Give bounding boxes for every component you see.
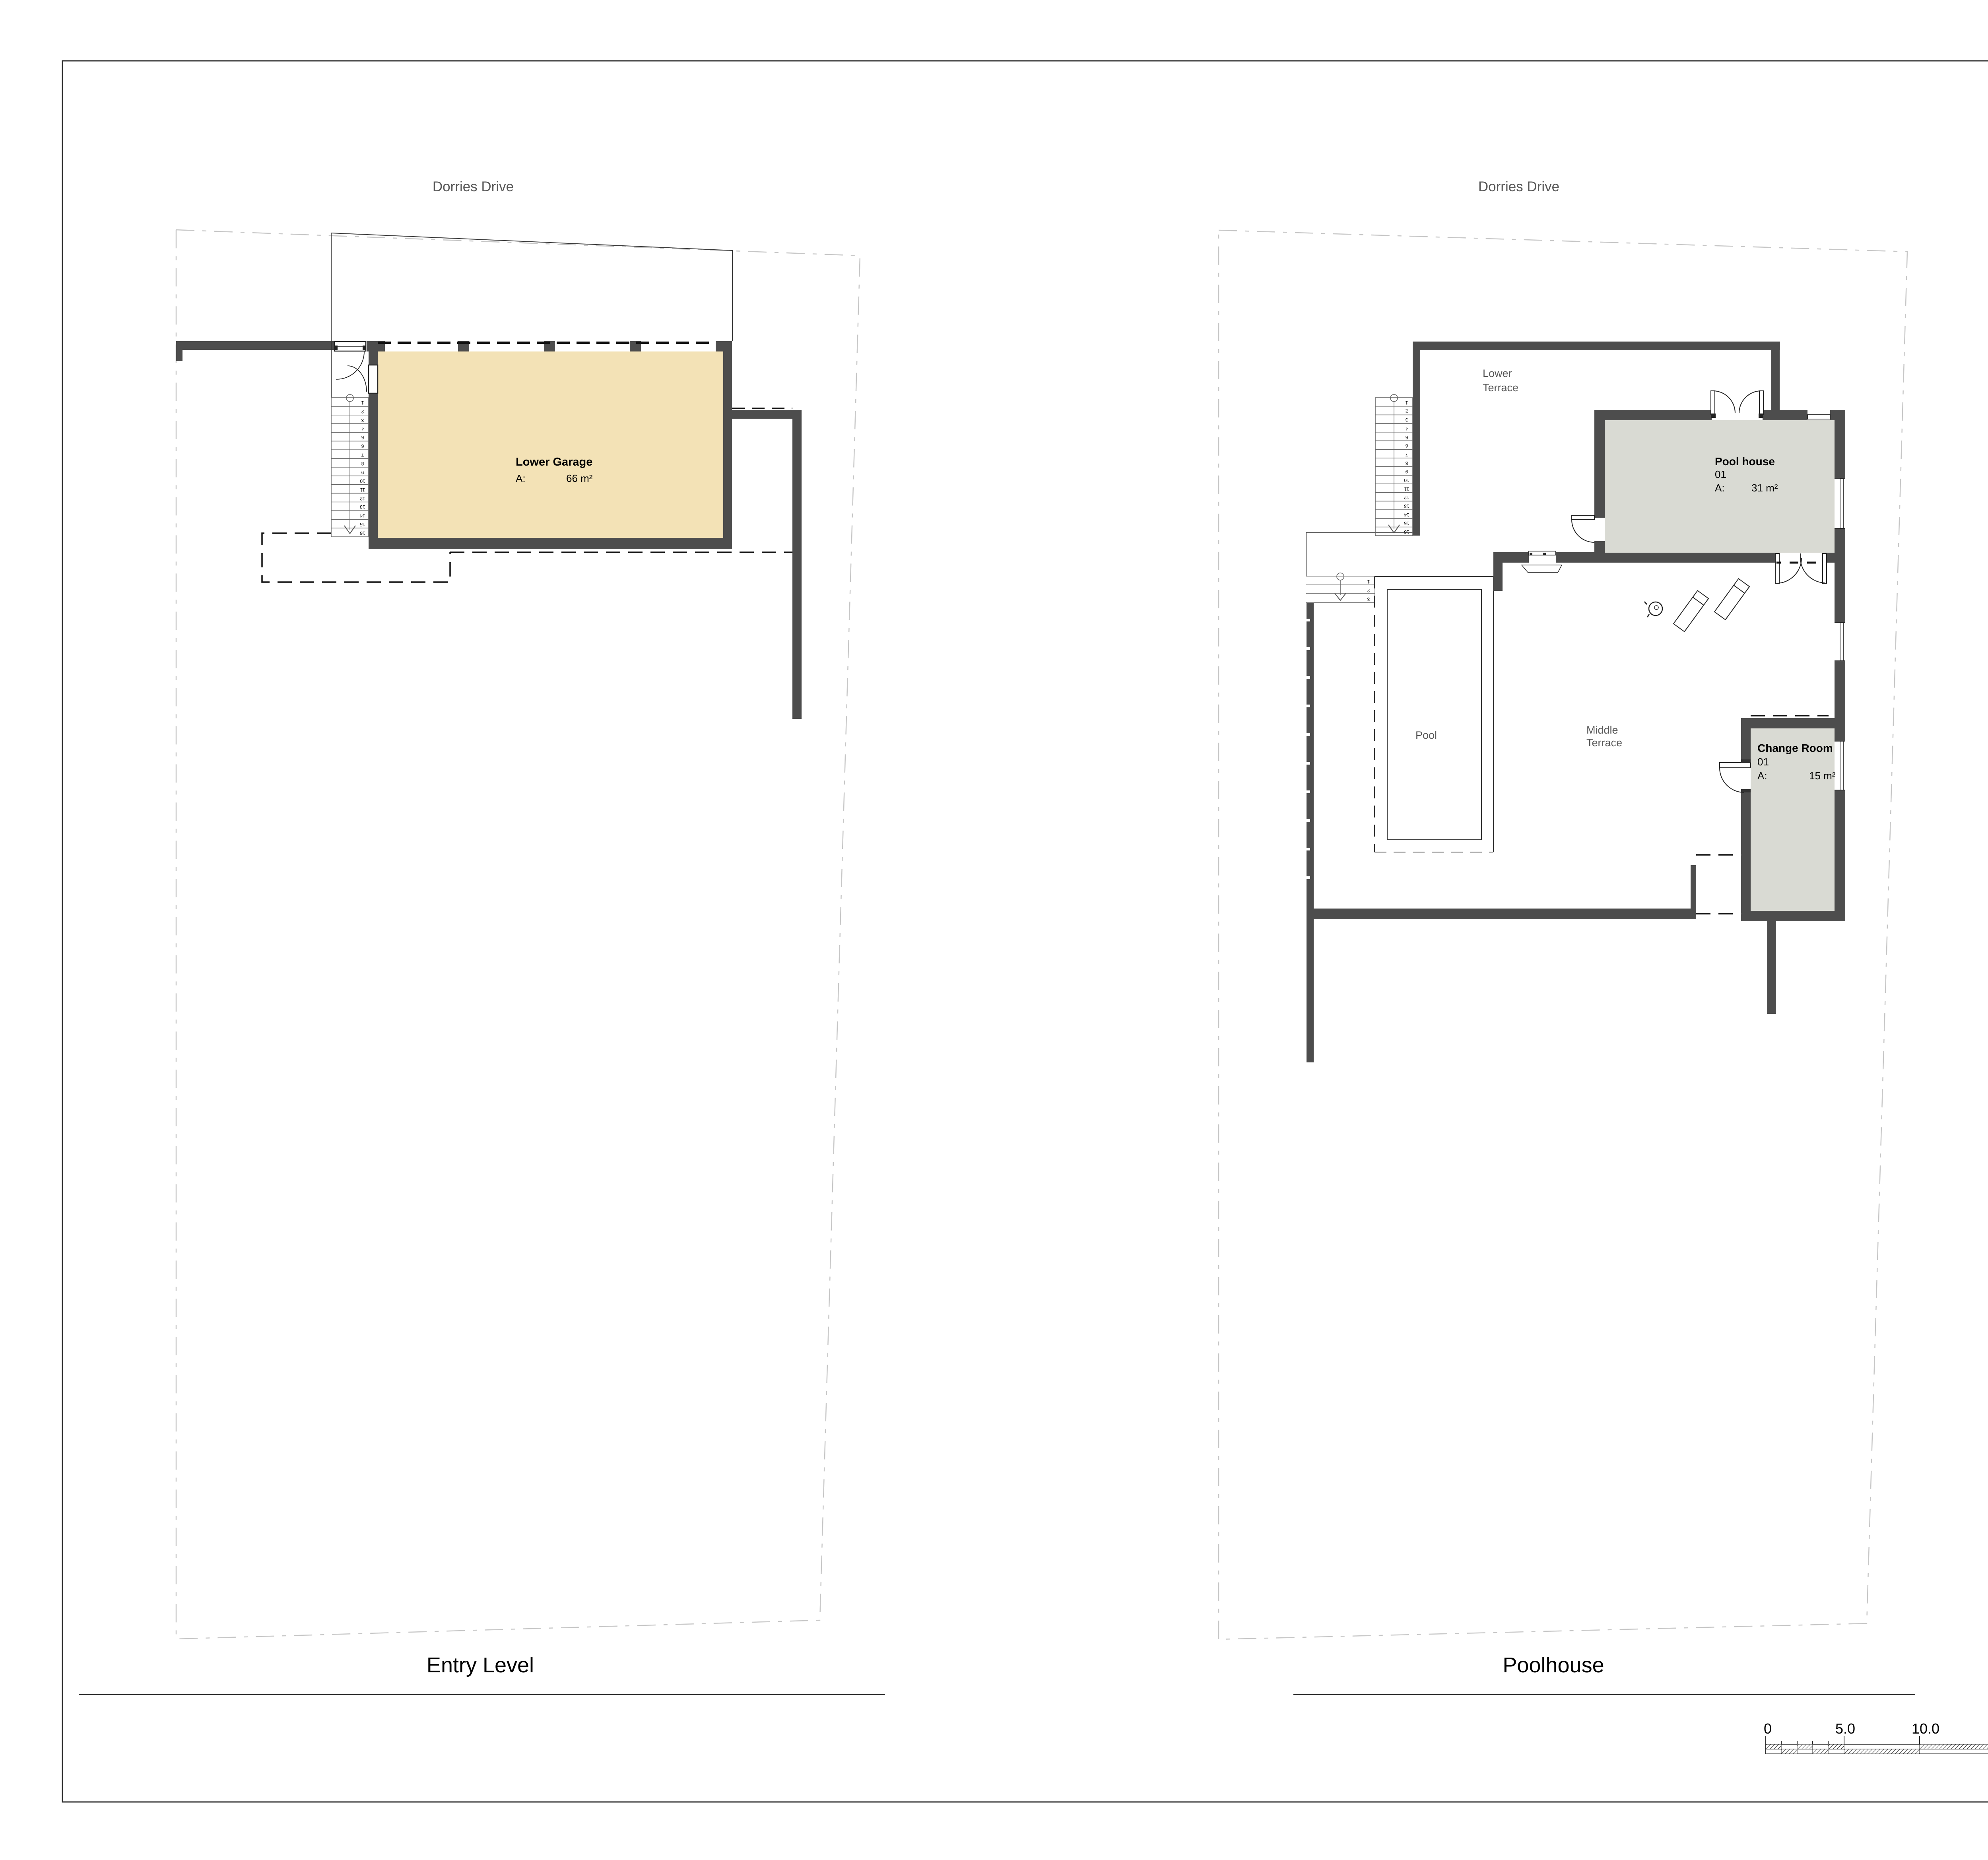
svg-text:4: 4 — [361, 426, 364, 431]
svg-text:15: 15 — [1404, 520, 1409, 526]
svg-text:Terrace: Terrace — [1586, 737, 1622, 749]
svg-text:12: 12 — [1404, 495, 1409, 500]
svg-text:Pool: Pool — [1415, 729, 1437, 741]
svg-text:Lower: Lower — [1483, 367, 1512, 379]
svg-text:3: 3 — [1405, 417, 1408, 423]
svg-text:Poolhouse: Poolhouse — [1503, 1653, 1604, 1677]
svg-text:8: 8 — [361, 461, 364, 466]
svg-text:A:: A: — [1757, 770, 1767, 782]
svg-text:2: 2 — [1405, 408, 1408, 414]
svg-text:Change Room: Change Room — [1757, 742, 1833, 754]
svg-text:5: 5 — [361, 435, 364, 440]
svg-text:31 m²: 31 m² — [1751, 482, 1778, 494]
svg-text:1: 1 — [361, 400, 364, 406]
svg-text:9: 9 — [1405, 469, 1408, 474]
svg-text:Entry Level: Entry Level — [427, 1653, 534, 1677]
svg-text:A:: A: — [1715, 482, 1725, 494]
svg-text:14: 14 — [360, 513, 365, 518]
svg-text:01: 01 — [1715, 468, 1726, 480]
svg-text:6: 6 — [1405, 443, 1408, 448]
svg-text:0: 0 — [1764, 1720, 1772, 1737]
svg-text:Lower Garage: Lower Garage — [516, 456, 592, 468]
svg-text:16: 16 — [360, 530, 365, 536]
svg-text:1: 1 — [1405, 400, 1408, 406]
svg-text:10.0: 10.0 — [1912, 1720, 1939, 1737]
svg-text:66 m²: 66 m² — [566, 472, 593, 484]
svg-text:10: 10 — [1404, 478, 1409, 483]
svg-text:1: 1 — [1367, 579, 1370, 584]
svg-text:7: 7 — [1405, 452, 1408, 457]
svg-text:7: 7 — [361, 452, 364, 458]
svg-text:13: 13 — [360, 504, 365, 510]
svg-text:14: 14 — [1404, 512, 1409, 518]
svg-text:2: 2 — [361, 409, 364, 414]
svg-text:15 m²: 15 m² — [1809, 770, 1836, 782]
svg-text:4: 4 — [1405, 426, 1408, 431]
svg-text:15: 15 — [360, 522, 365, 527]
svg-text:Terrace: Terrace — [1483, 382, 1518, 394]
svg-text:A:: A: — [516, 472, 526, 484]
svg-text:Middle: Middle — [1586, 724, 1618, 736]
svg-text:Dorries Drive: Dorries Drive — [433, 179, 514, 194]
svg-text:11: 11 — [360, 487, 365, 493]
svg-text:01: 01 — [1757, 756, 1769, 768]
svg-text:12: 12 — [360, 496, 365, 501]
svg-text:8: 8 — [1405, 460, 1408, 466]
svg-text:5.0: 5.0 — [1835, 1720, 1855, 1737]
svg-text:2: 2 — [1367, 588, 1370, 593]
svg-text:9: 9 — [361, 470, 364, 475]
svg-text:13: 13 — [1404, 503, 1409, 509]
svg-text:6: 6 — [361, 443, 364, 449]
svg-text:11: 11 — [1404, 486, 1409, 492]
svg-text:5: 5 — [1405, 435, 1408, 440]
svg-text:16: 16 — [1404, 529, 1409, 535]
svg-text:3: 3 — [1367, 596, 1370, 602]
svg-text:10: 10 — [360, 478, 365, 484]
svg-text:3: 3 — [361, 417, 364, 423]
svg-text:Pool house: Pool house — [1715, 455, 1775, 468]
svg-text:Dorries Drive: Dorries Drive — [1478, 179, 1559, 194]
